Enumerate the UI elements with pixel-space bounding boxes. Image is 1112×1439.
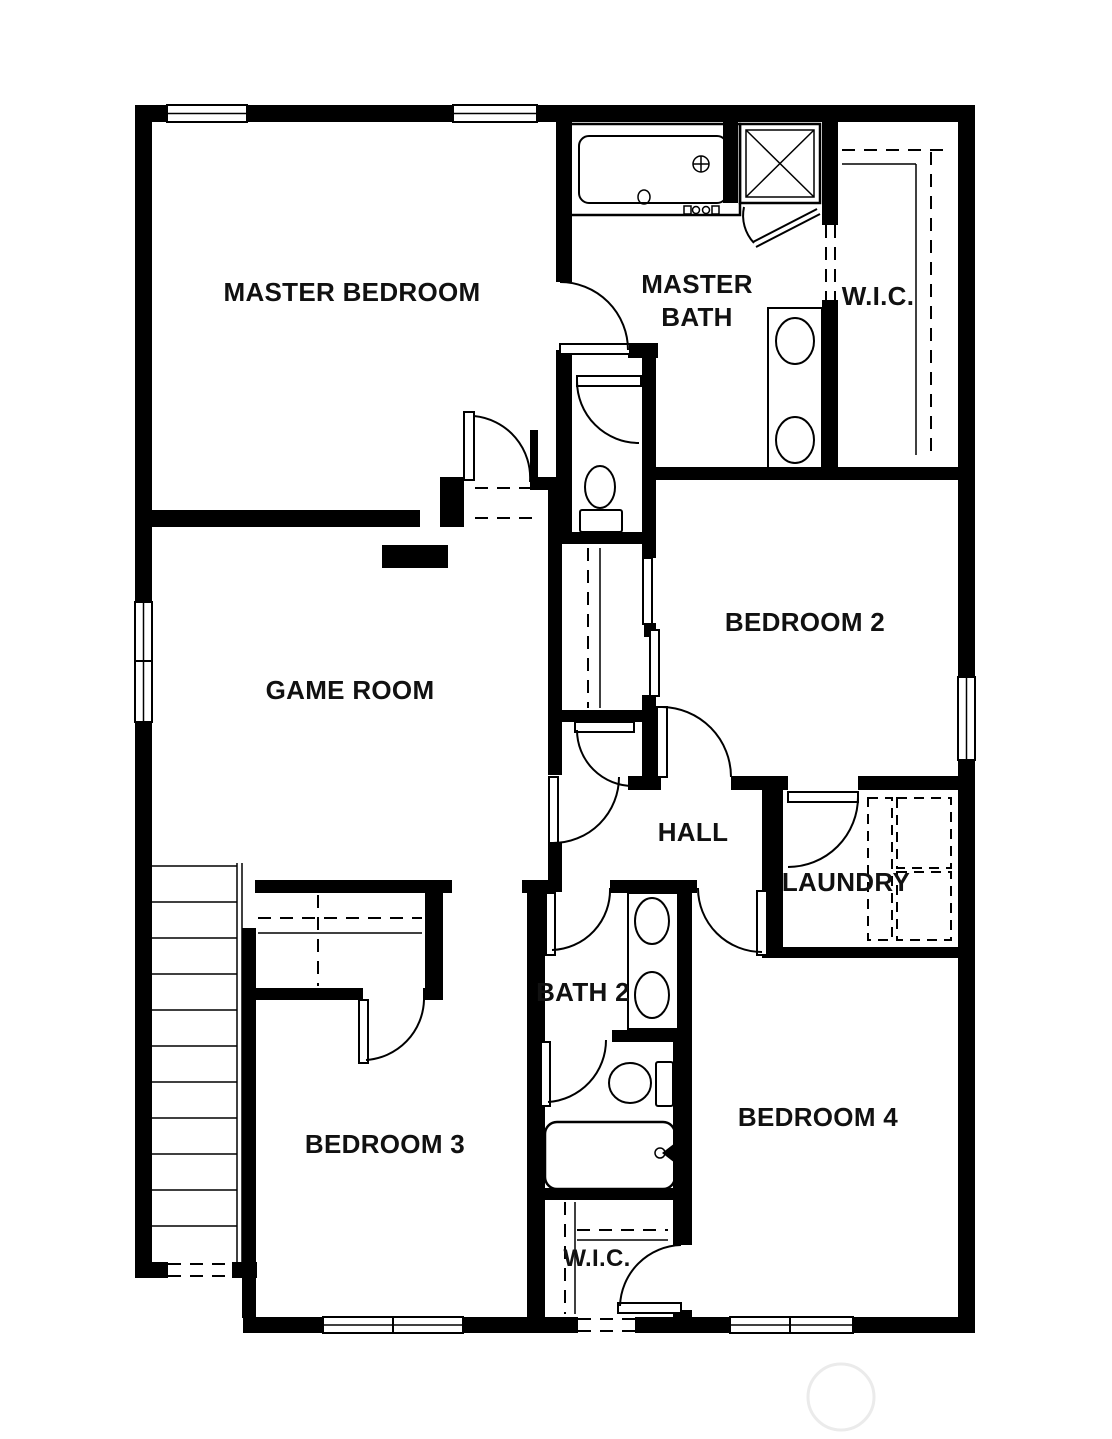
window <box>453 105 537 122</box>
wall-segment <box>822 300 838 467</box>
staircase <box>152 863 242 1262</box>
wall-segment <box>425 880 443 1000</box>
wall-segment <box>548 532 656 544</box>
wall-segment <box>628 776 661 790</box>
wall-segment <box>440 477 464 527</box>
bath2-compartment-door <box>541 1040 606 1106</box>
wall-segment <box>642 695 656 710</box>
bath2-vanity-icon <box>628 893 678 1029</box>
bath2-toilet-icon <box>609 1062 673 1106</box>
label-bedroom4: BEDROOM 4 <box>738 1102 898 1132</box>
window <box>958 677 975 760</box>
wall-segment <box>673 1193 692 1245</box>
bath2-tub-icon <box>545 1122 675 1189</box>
bedroom3-closet-door <box>359 1000 424 1063</box>
label-laundry: LAUNDRY <box>782 867 910 897</box>
label-hall: HALL <box>658 817 729 847</box>
wall-segment <box>762 947 958 958</box>
wall-segment <box>423 988 443 1000</box>
laundry-door <box>788 792 858 867</box>
label-bedroom2: BEDROOM 2 <box>725 607 885 637</box>
master-vanity-icon <box>768 308 822 468</box>
window <box>323 1317 463 1333</box>
water-closet-door <box>577 376 641 443</box>
label-bedroom3: BEDROOM 3 <box>305 1129 465 1159</box>
bath2-door <box>546 888 610 955</box>
bedroom3-closet-rod <box>258 895 422 986</box>
floor-plan-canvas: MASTER BEDROOM MASTER BATH W.I.C. GAME R… <box>0 0 1112 1439</box>
label-master-bath-line1: MASTER <box>641 269 753 299</box>
master-bedroom-door <box>464 412 536 518</box>
wall-segment <box>723 122 738 203</box>
hall-vestibule-door <box>575 722 634 786</box>
wall-segment <box>255 988 363 1000</box>
wall-segment <box>135 105 975 122</box>
bedroom2-door <box>657 707 731 777</box>
master-wic-opening <box>826 225 835 300</box>
bedroom4-door <box>698 888 767 955</box>
bedroom2-closet-rod <box>588 548 600 708</box>
wic-base-opening <box>578 1317 635 1333</box>
wall-segment <box>731 776 788 790</box>
wall-segment <box>642 544 656 558</box>
label-game-room: GAME ROOM <box>266 675 435 705</box>
wall-segment <box>382 545 448 568</box>
label-bath2: BATH 2 <box>536 977 630 1007</box>
label-wic-master: W.I.C. <box>842 281 915 311</box>
wall-segment <box>522 880 550 893</box>
walk-in-shower-icon <box>740 124 820 203</box>
label-wic-bedroom4: W.I.C. <box>563 1245 630 1272</box>
window <box>167 105 247 122</box>
label-master-bedroom: MASTER BEDROOM <box>224 277 481 307</box>
wall-segment <box>642 722 656 776</box>
wall-segment <box>530 430 538 477</box>
wall-segment <box>242 928 256 1318</box>
wall-segment <box>822 122 838 225</box>
toilet-icon <box>580 466 622 532</box>
watermark-circle <box>808 1364 874 1430</box>
garden-tub-icon <box>565 124 740 215</box>
window <box>730 1317 853 1333</box>
wall-segment <box>858 776 958 790</box>
wall-segment <box>612 1030 673 1042</box>
stair-base-opening <box>168 1262 232 1278</box>
floor-plan-page: MASTER BEDROOM MASTER BATH W.I.C. GAME R… <box>0 0 1112 1439</box>
wall-segment <box>548 710 656 722</box>
wall-segment <box>548 843 562 892</box>
label-master-bath-line2: BATH <box>661 302 732 332</box>
master-bath-door <box>560 282 630 354</box>
wall-segment <box>642 478 656 544</box>
window <box>135 602 152 722</box>
game-room-door <box>549 777 619 843</box>
wall-segment <box>548 477 562 775</box>
shower-door <box>743 207 820 247</box>
wall-segment <box>152 510 420 527</box>
wall-segment <box>255 880 452 893</box>
